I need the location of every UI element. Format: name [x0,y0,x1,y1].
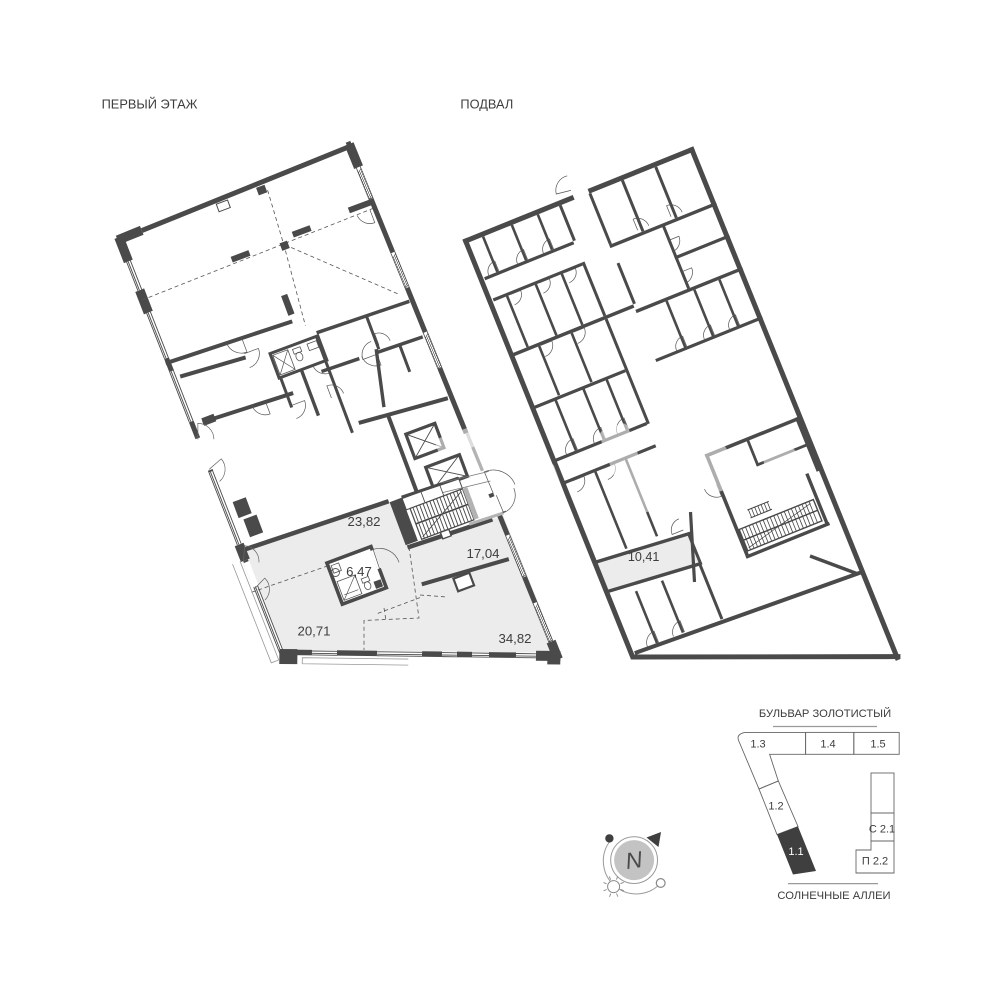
svg-text:1.4: 1.4 [820,739,835,751]
svg-text:ПОДВАЛ: ПОДВАЛ [460,97,513,112]
svg-text:17,04: 17,04 [466,546,499,561]
svg-text:1.3: 1.3 [750,739,765,751]
svg-text:10,41: 10,41 [628,550,660,564]
svg-text:1.5: 1.5 [870,739,885,751]
svg-text:БУЛЬВАР ЗОЛОТИСТЫЙ: БУЛЬВАР ЗОЛОТИСТЫЙ [759,707,891,720]
svg-text:С 2.1: С 2.1 [869,824,895,836]
svg-text:20,71: 20,71 [297,624,330,639]
svg-text:СОЛНЕЧНЫЕ АЛЛЕИ: СОЛНЕЧНЫЕ АЛЛЕИ [777,890,890,902]
svg-text:6,47: 6,47 [346,564,372,579]
svg-text:1.1: 1.1 [788,846,803,858]
svg-text:23,82: 23,82 [347,514,380,529]
svg-text:1.2: 1.2 [768,801,783,813]
svg-text:34,82: 34,82 [498,631,531,646]
svg-text:ПЕРВЫЙ ЭТАЖ: ПЕРВЫЙ ЭТАЖ [102,97,198,112]
svg-text:П 2.2: П 2.2 [862,856,888,868]
